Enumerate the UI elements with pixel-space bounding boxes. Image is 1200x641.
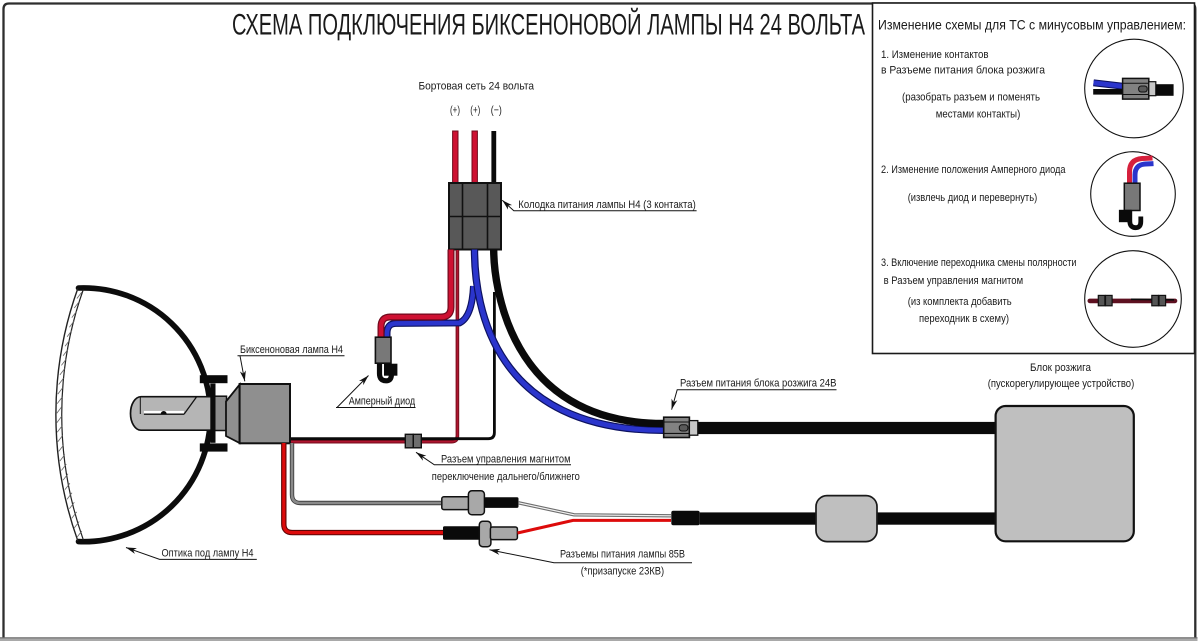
svg-text:Колодка питания лампы Н4 (3 ко: Колодка питания лампы Н4 (3 контакта) — [518, 199, 696, 211]
svg-text:переключение дальнего/ближнего: переключение дальнего/ближнего — [432, 471, 580, 483]
svg-text:Биксеноновая лампа Н4: Биксеноновая лампа Н4 — [240, 344, 343, 356]
svg-text:Амперный диод: Амперный диод — [349, 396, 416, 408]
svg-text:в Разъеме питания блока розжиг: в Разъеме питания блока розжига — [881, 64, 1046, 76]
svg-text:переходник в схему): переходник в схему) — [919, 313, 1009, 325]
svg-text:(пускорегулирующее устройство): (пускорегулирующее устройство) — [988, 378, 1135, 390]
svg-text:местами контакты): местами контакты) — [936, 108, 1021, 120]
svg-text:Разъем питания блока розжига 2: Разъем питания блока розжига 24В — [680, 377, 837, 389]
svg-text:Изменение схемы для ТС с минус: Изменение схемы для ТС с минусовым управ… — [878, 17, 1186, 32]
svg-text:Бортовая сеть 24 вольта: Бортовая сеть 24 вольта — [419, 81, 535, 93]
svg-text:в Разъем управления магнитом: в Разъем управления магнитом — [884, 275, 1024, 287]
svg-text:(из комплекта добавить: (из комплекта добавить — [908, 296, 1012, 308]
svg-text:(разобрать разъем и поменять: (разобрать разъем и поменять — [902, 91, 1040, 103]
svg-text:1. Изменение контактов: 1. Изменение контактов — [881, 49, 989, 61]
svg-text:(*призапуске 23КВ): (*призапуске 23КВ) — [581, 565, 665, 577]
svg-text:(извлечь диод и перевернуть): (извлечь диод и перевернуть) — [908, 192, 1037, 204]
svg-text:Разъем управления магнитом: Разъем управления магнитом — [441, 453, 571, 465]
svg-text:(+): (+) — [470, 105, 480, 117]
svg-text:3. Включение переходника смены: 3. Включение переходника смены полярност… — [881, 257, 1077, 269]
svg-text:Оптика под лампу Н4: Оптика под лампу Н4 — [162, 547, 254, 559]
svg-text:(−): (−) — [491, 105, 502, 117]
svg-text:Разъемы питания лампы 85В: Разъемы питания лампы 85В — [560, 548, 685, 560]
svg-text:Блок розжига: Блок розжига — [1030, 362, 1092, 374]
svg-text:СХЕМА ПОДКЛЮЧЕНИЯ БИКСЕНОНОВОЙ: СХЕМА ПОДКЛЮЧЕНИЯ БИКСЕНОНОВОЙ ЛАМПЫ Н4 … — [232, 8, 865, 42]
svg-text:(+): (+) — [450, 105, 460, 117]
svg-text:2. Изменение положения Амперно: 2. Изменение положения Амперного диода — [881, 164, 1066, 176]
